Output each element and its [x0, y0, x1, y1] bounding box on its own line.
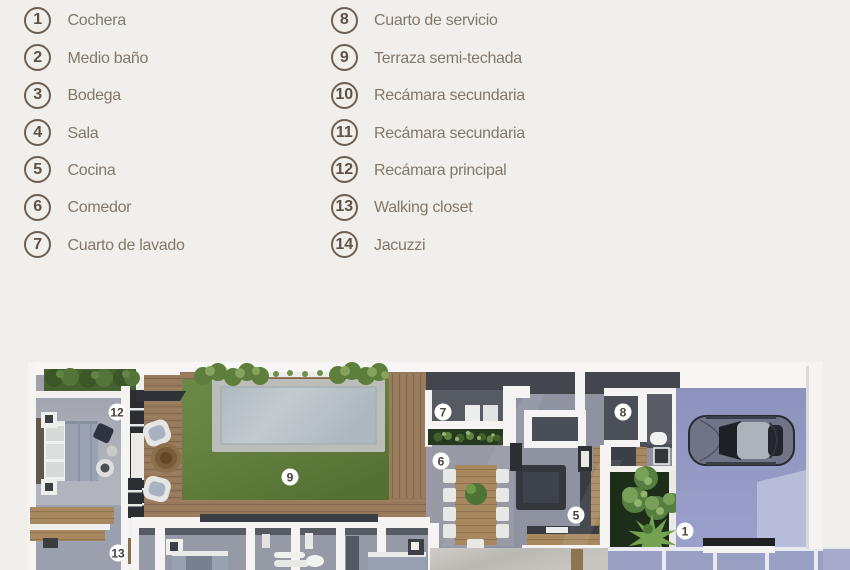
svg-text:1: 1 — [682, 525, 689, 539]
svg-text:5: 5 — [573, 509, 580, 523]
svg-text:9: 9 — [287, 471, 294, 485]
svg-text:13: 13 — [111, 547, 125, 561]
svg-text:7: 7 — [440, 406, 447, 420]
svg-text:6: 6 — [438, 455, 445, 469]
svg-text:8: 8 — [620, 406, 627, 420]
svg-text:12: 12 — [110, 406, 124, 420]
